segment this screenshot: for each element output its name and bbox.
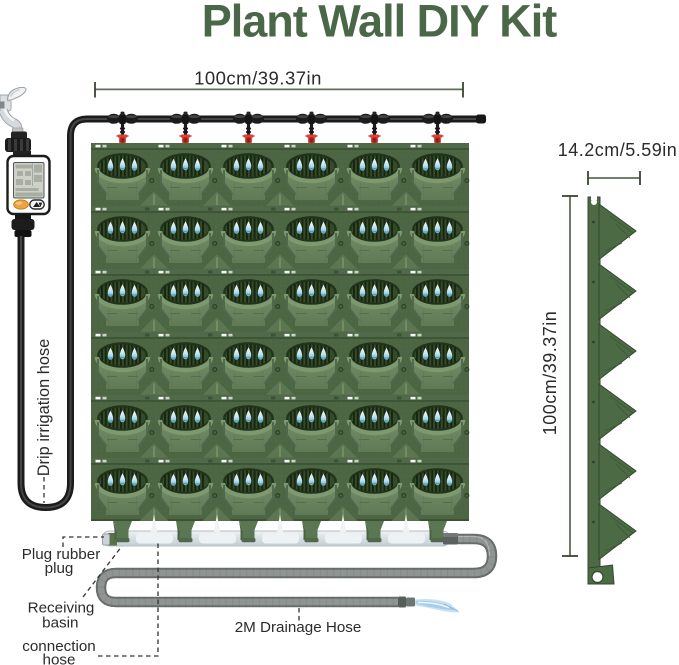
svg-text:14.2cm/5.59in: 14.2cm/5.59in <box>558 140 678 160</box>
svg-text:100cm/39.37in: 100cm/39.37in <box>540 311 560 436</box>
svg-text:Drip irrigation hose: Drip irrigation hose <box>35 339 53 477</box>
svg-text:basin: basin <box>42 615 78 632</box>
svg-text:hose: hose <box>43 652 76 665</box>
svg-text:Plant Wall DIY Kit: Plant Wall DIY Kit <box>202 0 558 47</box>
svg-text:plug: plug <box>45 560 74 577</box>
svg-text:100cm/39.37in: 100cm/39.37in <box>194 68 322 89</box>
svg-text:2M Drainage Hose: 2M Drainage Hose <box>235 619 362 636</box>
